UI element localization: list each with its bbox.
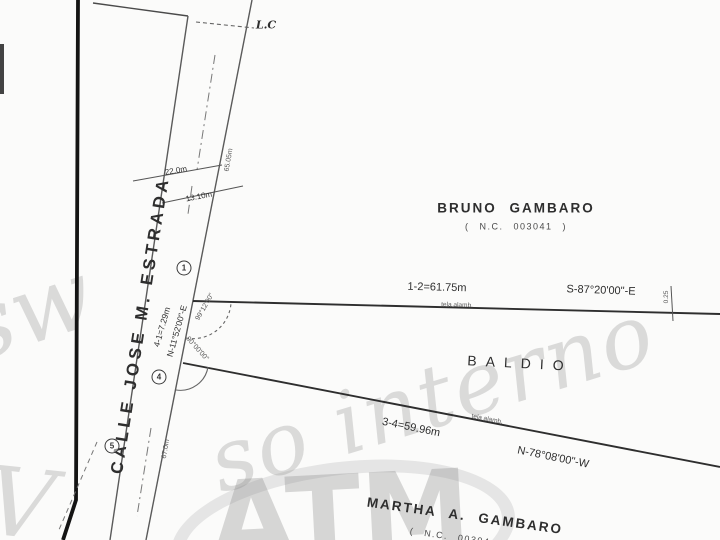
street-width-label-22m: 22.0m [164,165,187,177]
south-parcel-nc-label: ( N.C. 00304 [409,527,490,540]
lc-label: L.C [256,20,276,31]
vertex-marker-1: 1 [177,261,192,276]
angle-label-vertex-4: 90°00'00" [184,336,209,363]
boundary-1-2-fence-label: tela alamb. [441,302,473,310]
boundary-1-2-offset-label: 0.25 [664,291,671,304]
frontage-label-top: 65.05m [224,148,235,172]
boundary-3-4-length-label: 3-4=59.96m [381,417,441,440]
north-parcel-owner-label: BRUNO GAMBARO [437,201,595,215]
frontage-label-bottom: 67.0m [161,439,171,459]
south-parcel-owner-label: MARTHA A. GAMBARO [366,496,564,537]
boundary-3-4-bearing-label: N-78°08'00"-W [516,445,589,470]
plan-labels: CALLE JOSE M. ESTRADA L.C 22.0m 13.10m 6… [0,0,720,540]
boundary-1-2-length-label: 1-2=61.75m [407,282,466,295]
boundary-1-2-bearing-label: S-87°20'00"-E [566,284,635,297]
vertex-marker-5: 5 [105,439,120,454]
vertex-marker-4: 4 [152,370,167,385]
lot-label: BALDIO [467,353,573,372]
street-width-label-1310m: 13.10m [185,191,213,204]
angle-label-vertex-1: 99°12'00" [194,292,215,321]
survey-plan-page: sw so interno ATM V CALLE JOSE M. ESTRAD… [0,0,720,540]
north-parcel-nc-label: ( N.C. 003041 ) [465,223,567,232]
boundary-3-4-fence-label: tela alamb. [471,414,503,426]
